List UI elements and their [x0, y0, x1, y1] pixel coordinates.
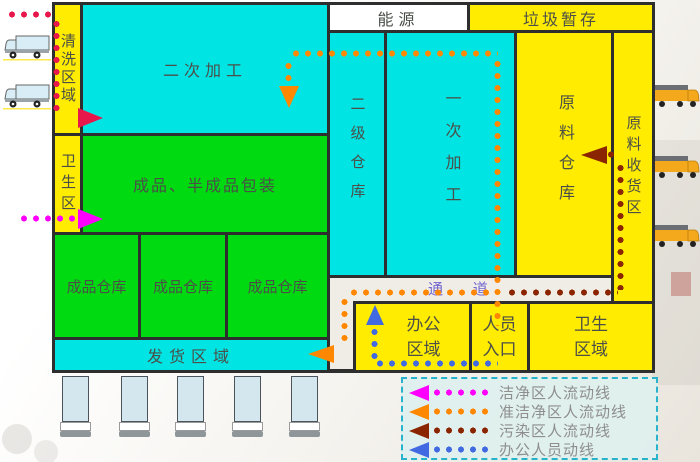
- room-finished-warehouse-1: 成品仓库: [52, 232, 141, 340]
- room-label: 清洗区域: [57, 33, 78, 105]
- room-label: 发货区域: [147, 343, 235, 367]
- background-circle-decoration: [34, 440, 58, 462]
- quasi-clean-flow-arrow-icon: [279, 86, 299, 108]
- loading-dock-icon: [62, 376, 89, 437]
- office-flow-arrow-icon: [366, 305, 384, 325]
- room-label: 卫生区域: [571, 312, 611, 363]
- contaminated-flow-line: [617, 162, 624, 290]
- legend-row-clean-flow: 洁净区人流动线: [409, 383, 656, 402]
- left-arrow-icon: [409, 385, 429, 401]
- room-label: 原料收货区: [623, 115, 644, 220]
- left-arrow-icon: [409, 442, 429, 458]
- room-finished-warehouse-3: 成品仓库: [225, 232, 330, 340]
- clean-flow-arrow-icon: [78, 209, 103, 229]
- legend-label: 准洁净区人流动线: [499, 401, 627, 422]
- quasi-clean-flow-line: [348, 289, 494, 296]
- room-secondary-warehouse: 二级仓库: [327, 30, 387, 278]
- room-finished-warehouse-2: 成品仓库: [138, 232, 228, 340]
- wash-entry-flow-line: [6, 11, 54, 18]
- room-label: 成品、半成品包装: [133, 172, 277, 196]
- contaminated-flow-line: [605, 151, 619, 158]
- legend-row-contaminated-flow: 污染区人流动线: [409, 421, 656, 440]
- room-label: 二次加工: [163, 57, 247, 81]
- legend-row-office-flow: 办公人员动线: [409, 440, 656, 459]
- room-label: 原料仓库: [552, 94, 576, 214]
- truck-icon: [654, 224, 700, 255]
- legend-label: 洁净区人流动线: [499, 382, 611, 403]
- quasi-clean-flow-arrow-icon: [308, 345, 334, 363]
- loading-dock-icon: [177, 376, 204, 437]
- loading-dock-icon: [291, 376, 318, 437]
- truck-icon: [654, 155, 700, 186]
- left-arrow-icon: [409, 423, 429, 439]
- room-label: 能源: [377, 6, 419, 30]
- quasi-clean-flow-line: [285, 60, 292, 86]
- background-circle-decoration: [2, 424, 32, 454]
- room-label: 成品仓库: [247, 276, 307, 297]
- contaminated-flow-arrow-icon: [581, 146, 607, 164]
- contaminated-flow-line: [506, 289, 618, 296]
- office-flow-line: [371, 326, 378, 360]
- room-label: 一次加工: [439, 90, 463, 218]
- room-label: 垃圾暂存: [523, 6, 599, 30]
- quasi-clean-flow-line: [494, 58, 501, 326]
- room-label: 卫生区: [57, 153, 78, 216]
- wash-entry-flow-line: [53, 18, 60, 116]
- room-label: 二级仓库: [347, 96, 368, 212]
- background-photo-accent: [671, 272, 691, 296]
- loading-dock-icon: [121, 376, 148, 437]
- dotted-line-icon: [431, 446, 489, 453]
- legend-label: 办公人员动线: [499, 439, 595, 460]
- room-label: 办公区域: [404, 312, 444, 363]
- factory-layout-diagram: 清洗区域 卫生区 二次加工 成品、半成品包装 成品仓库 成品仓库 成品仓库 发货…: [0, 0, 700, 462]
- clean-flow-line: [18, 215, 76, 222]
- quasi-clean-flow-line: [341, 296, 348, 346]
- legend-row-quasi-clean-flow: 准洁净区人流动线: [409, 402, 656, 421]
- flow-legend: 洁净区人流动线 准洁净区人流动线 污染区人流动线 办公人员动线: [401, 377, 658, 460]
- quasi-clean-flow-line: [290, 50, 498, 57]
- left-arrow-icon: [409, 404, 429, 420]
- office-flow-line: [374, 360, 498, 367]
- room-hygiene-area: 卫生区域: [527, 301, 655, 373]
- room-packaging: 成品、半成品包装: [80, 133, 330, 235]
- room-secondary-processing: 二次加工: [80, 2, 330, 136]
- room-energy: 能源: [327, 2, 470, 33]
- legend-label: 污染区人流动线: [499, 420, 611, 441]
- dotted-line-icon: [431, 427, 489, 434]
- truck-icon: [3, 82, 51, 115]
- truck-icon: [3, 33, 51, 66]
- room-garbage-storage: 垃圾暂存: [467, 2, 655, 33]
- loading-dock-icon: [234, 376, 261, 437]
- dotted-line-icon: [431, 408, 489, 415]
- room-label: 成品仓库: [66, 276, 126, 297]
- room-label: 成品仓库: [153, 276, 213, 297]
- wash-entry-arrow-icon: [78, 108, 103, 128]
- truck-icon: [654, 84, 700, 115]
- dotted-line-icon: [431, 389, 489, 396]
- room-shipping-area: 发货区域: [52, 337, 330, 373]
